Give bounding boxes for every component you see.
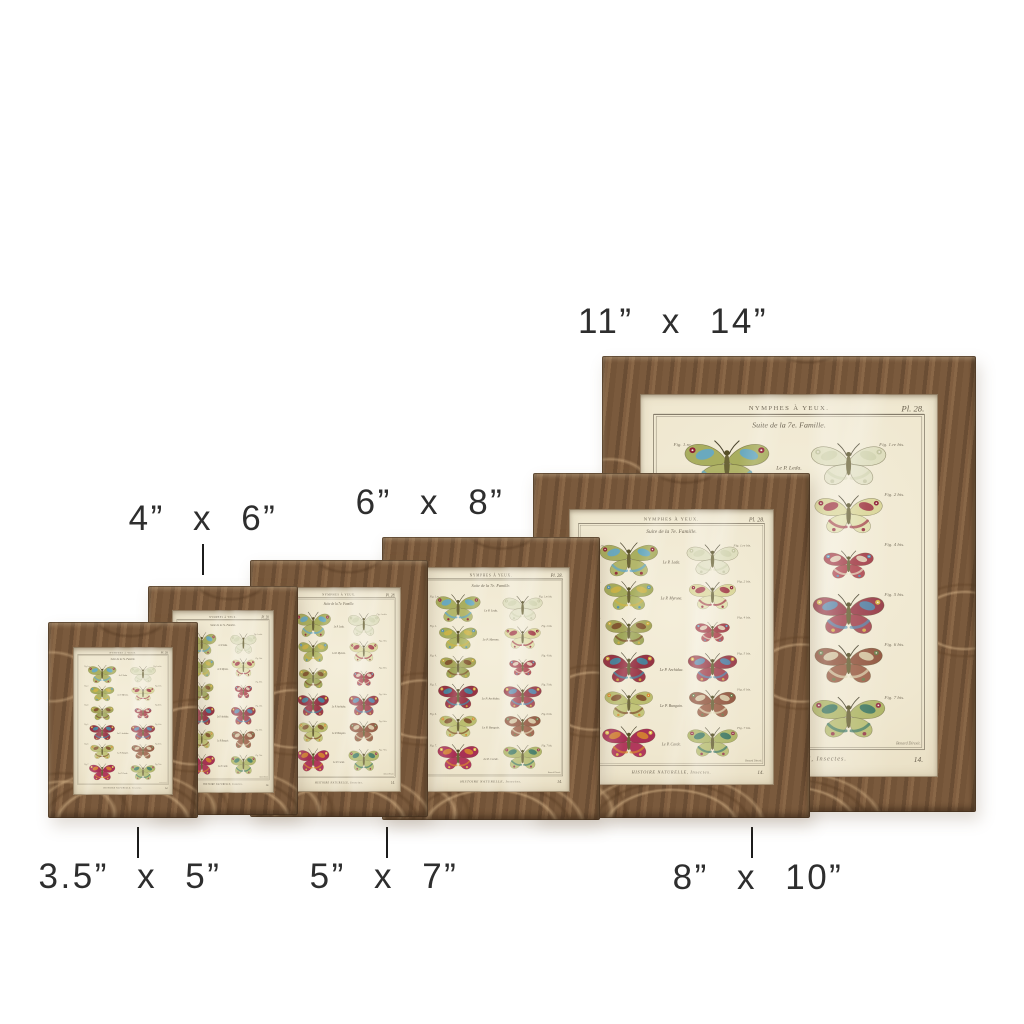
svg-text:Fig. 5.: Fig. 5. xyxy=(429,684,437,687)
size-tick-8x10 xyxy=(751,827,753,858)
svg-text:Fig. 5 bis.: Fig. 5 bis. xyxy=(255,705,263,707)
svg-text:Fig. 2 bis.: Fig. 2 bis. xyxy=(883,493,904,498)
butterfly-plate-svg: NYMPHES À YEUX.Pl. 28.Suite de la 7e. Fa… xyxy=(412,567,570,792)
svg-text:Le P. Archiduc.: Le P. Archiduc. xyxy=(116,732,129,735)
svg-text:Le P. Carde.: Le P. Carde. xyxy=(661,743,681,747)
svg-text:Fig. 5 bis.: Fig. 5 bis. xyxy=(154,724,162,726)
svg-text:HISTOIRE NATURELLE, Insectes.: HISTOIRE NATURELLE, Insectes. xyxy=(202,783,243,786)
svg-text:Le P. Myrone.: Le P. Myrone. xyxy=(217,669,229,671)
svg-text:Benard Direxit.: Benard Direxit. xyxy=(384,772,395,775)
svg-text:HISTOIRE NATURELLE, Insectes.: HISTOIRE NATURELLE, Insectes. xyxy=(631,769,712,775)
svg-text:Benard Direxit.: Benard Direxit. xyxy=(745,760,762,763)
svg-text:Pl. 28.: Pl. 28. xyxy=(385,592,395,597)
size-label-5x7: 5” x 7” xyxy=(244,858,524,896)
svg-text:Pl. 28.: Pl. 28. xyxy=(261,615,270,619)
svg-text:Suite de la 7e. Famille.: Suite de la 7e. Famille. xyxy=(210,623,235,627)
svg-text:Fig. 6 bis.: Fig. 6 bis. xyxy=(541,713,553,716)
svg-text:Fig. 4 bis.: Fig. 4 bis. xyxy=(883,543,904,548)
svg-text:Suite de la 7e. Famille.: Suite de la 7e. Famille. xyxy=(111,658,136,661)
svg-text:Le P. Archiduc.: Le P. Archiduc. xyxy=(216,715,229,718)
svg-text:Fig. 4 bis.: Fig. 4 bis. xyxy=(378,666,388,669)
svg-text:Le P. Bungain.: Le P. Bungain. xyxy=(659,704,683,708)
svg-text:Fig. 6.: Fig. 6. xyxy=(429,713,437,716)
svg-text:Le P. Carde.: Le P. Carde. xyxy=(217,766,228,768)
svg-text:Fig. 5 bis.: Fig. 5 bis. xyxy=(378,694,388,696)
svg-text:HISTOIRE NATURELLE, Insectes.: HISTOIRE NATURELLE, Insectes. xyxy=(103,787,143,790)
svg-text:Fig. 7 bis.: Fig. 7 bis. xyxy=(736,726,751,730)
svg-text:Fig. 7 bis.: Fig. 7 bis. xyxy=(541,744,553,747)
svg-text:14.: 14. xyxy=(266,782,269,786)
svg-text:Fig. 4.: Fig. 4. xyxy=(83,704,89,707)
size-tick-3.5x5 xyxy=(137,827,139,858)
svg-text:Pl. 28.: Pl. 28. xyxy=(900,405,924,414)
butterfly-print-6x8: NYMPHES À YEUX.Pl. 28.Suite de la 7e. Fa… xyxy=(412,567,570,792)
svg-text:Fig. 4 bis.: Fig. 4 bis. xyxy=(255,680,263,683)
svg-text:Fig. 2 bis.: Fig. 2 bis. xyxy=(154,685,162,687)
svg-text:Le P. Bungain.: Le P. Bungain. xyxy=(116,752,129,754)
svg-text:14.: 14. xyxy=(914,756,924,764)
svg-text:Fig. 4.: Fig. 4. xyxy=(429,654,437,657)
svg-text:NYMPHES À YEUX.: NYMPHES À YEUX. xyxy=(470,572,513,577)
svg-text:14.: 14. xyxy=(165,787,168,790)
svg-text:NYMPHES À YEUX.: NYMPHES À YEUX. xyxy=(322,591,356,596)
svg-text:Le P. Bungain.: Le P. Bungain. xyxy=(331,732,346,735)
svg-text:Le P. Archiduc.: Le P. Archiduc. xyxy=(331,705,347,708)
svg-text:Fig. 2 bis.: Fig. 2 bis. xyxy=(541,625,553,628)
svg-text:Benard Direxit.: Benard Direxit. xyxy=(260,775,269,778)
svg-text:Fig. 5 bis.: Fig. 5 bis. xyxy=(736,652,751,656)
svg-text:Fig. 2 bis.: Fig. 2 bis. xyxy=(378,641,388,643)
svg-text:Fig. 7 bis.: Fig. 7 bis. xyxy=(154,764,162,766)
svg-text:Le P. Carde.: Le P. Carde. xyxy=(483,757,499,761)
svg-text:14.: 14. xyxy=(757,770,763,776)
svg-text:Fig. 1.re bis.: Fig. 1.re bis. xyxy=(376,614,388,616)
svg-text:Fig. 5 bis.: Fig. 5 bis. xyxy=(541,684,553,687)
svg-text:Fig. 2 bis.: Fig. 2 bis. xyxy=(255,658,263,660)
svg-text:Fig. 7 bis.: Fig. 7 bis. xyxy=(883,696,904,701)
svg-text:Fig. 6 bis.: Fig. 6 bis. xyxy=(154,743,162,745)
svg-text:Fig. 1.re bis.: Fig. 1.re bis. xyxy=(878,443,904,448)
butterfly-plate-svg: NYMPHES À YEUX.Pl. 28.Suite de la 7e. Fa… xyxy=(73,647,173,795)
svg-text:Fig. 6 bis.: Fig. 6 bis. xyxy=(255,729,263,731)
svg-text:Le P. Myrone.: Le P. Myrone. xyxy=(117,694,129,696)
svg-text:Pl. 28.: Pl. 28. xyxy=(748,518,765,524)
svg-text:NYMPHES À YEUX.: NYMPHES À YEUX. xyxy=(109,651,136,654)
svg-text:Fig. 1.re bis.: Fig. 1.re bis. xyxy=(733,544,752,548)
svg-text:14.: 14. xyxy=(391,781,395,785)
size-label-4x6: 4” x 6” xyxy=(63,500,343,538)
svg-text:Fig. 7 bis.: Fig. 7 bis. xyxy=(378,749,388,751)
size-tick-4x6 xyxy=(202,544,204,575)
svg-text:Fig. 7.: Fig. 7. xyxy=(429,744,437,747)
svg-text:Benard Direxit.: Benard Direxit. xyxy=(159,780,168,783)
svg-text:Fig. 7 bis.: Fig. 7 bis. xyxy=(255,755,263,757)
svg-text:Pl. 28.: Pl. 28. xyxy=(160,651,169,655)
svg-text:Suite de la 7e. Famille.: Suite de la 7e. Famille. xyxy=(752,421,826,430)
svg-text:Fig. 2.: Fig. 2. xyxy=(429,625,437,628)
svg-text:Le P. Leda.: Le P. Leda. xyxy=(775,466,802,472)
svg-text:NYMPHES À YEUX.: NYMPHES À YEUX. xyxy=(644,517,699,522)
svg-text:Le P. Leda.: Le P. Leda. xyxy=(662,560,681,564)
svg-text:Fig. 6 bis.: Fig. 6 bis. xyxy=(736,688,751,692)
svg-text:Le P. Leda.: Le P. Leda. xyxy=(483,608,498,612)
svg-text:Le P. Archiduc.: Le P. Archiduc. xyxy=(659,668,684,672)
svg-text:Le P. Archiduc.: Le P. Archiduc. xyxy=(481,696,501,700)
svg-text:Le P. Bungain.: Le P. Bungain. xyxy=(216,740,229,742)
svg-text:Fig. 6.: Fig. 6. xyxy=(83,743,89,745)
svg-text:Suite de la 7e. Famille.: Suite de la 7e. Famille. xyxy=(646,529,697,535)
svg-text:Fig. 4 bis.: Fig. 4 bis. xyxy=(154,704,162,707)
svg-text:Benard Direxit.: Benard Direxit. xyxy=(896,742,921,746)
svg-text:Fig. 5.: Fig. 5. xyxy=(83,724,89,726)
svg-text:14.: 14. xyxy=(557,779,562,784)
svg-text:Fig. 6 bis.: Fig. 6 bis. xyxy=(883,643,904,648)
svg-text:HISTOIRE NATURELLE, Insectes.: HISTOIRE NATURELLE, Insectes. xyxy=(459,779,521,784)
svg-text:Fig. 7.: Fig. 7. xyxy=(83,764,89,766)
svg-text:Suite de la 7e. Famille.: Suite de la 7e. Famille. xyxy=(324,602,355,606)
size-label-8x10: 8” x 10” xyxy=(618,859,898,897)
size-tick-5x7 xyxy=(386,827,388,858)
frame-3.5x5: NYMPHES À YEUX.Pl. 28.Suite de la 7e. Fa… xyxy=(48,622,198,818)
svg-text:Le P. Myrone.: Le P. Myrone. xyxy=(332,652,346,655)
svg-text:Fig. 1.re bis.: Fig. 1.re bis. xyxy=(538,596,553,599)
svg-text:Le P. Bungain.: Le P. Bungain. xyxy=(481,726,500,730)
svg-text:Le P. Leda.: Le P. Leda. xyxy=(118,675,128,677)
svg-text:Le P. Myrone.: Le P. Myrone. xyxy=(482,638,500,642)
svg-text:Fig. 2.: Fig. 2. xyxy=(83,685,89,687)
svg-text:Benard Direxit.: Benard Direxit. xyxy=(548,771,561,774)
svg-text:Suite de la 7e. Famille.: Suite de la 7e. Famille. xyxy=(472,583,511,588)
svg-text:NYMPHES À YEUX.: NYMPHES À YEUX. xyxy=(209,616,237,619)
svg-text:Fig. 4 bis.: Fig. 4 bis. xyxy=(736,616,751,620)
svg-text:Le P. Leda.: Le P. Leda. xyxy=(333,625,345,628)
size-label-11x14: 11” x 14” xyxy=(513,303,833,341)
svg-text:Fig. 2 bis.: Fig. 2 bis. xyxy=(736,580,751,584)
svg-text:Pl. 28.: Pl. 28. xyxy=(550,574,563,579)
svg-text:Fig. 6 bis.: Fig. 6 bis. xyxy=(378,721,388,723)
size-label-3.5x5: 3.5” x 5” xyxy=(0,858,260,896)
svg-text:Le P. Carde.: Le P. Carde. xyxy=(117,773,128,775)
svg-text:Le P. Myrone.: Le P. Myrone. xyxy=(660,596,683,600)
svg-text:HISTOIRE NATURELLE, Insectes.: HISTOIRE NATURELLE, Insectes. xyxy=(314,780,363,784)
svg-text:Fig. 4 bis.: Fig. 4 bis. xyxy=(541,654,553,657)
butterfly-print-3.5x5: NYMPHES À YEUX.Pl. 28.Suite de la 7e. Fa… xyxy=(73,647,173,795)
product-size-comparison-image: NYMPHES À YEUX.Pl. 28.Suite de la 7e. Fa… xyxy=(0,0,1024,1024)
svg-text:Le P. Carde.: Le P. Carde. xyxy=(332,761,345,764)
svg-text:NYMPHES À YEUX.: NYMPHES À YEUX. xyxy=(749,404,830,412)
svg-text:Le P. Leda.: Le P. Leda. xyxy=(218,645,228,647)
svg-text:Fig. 5 bis.: Fig. 5 bis. xyxy=(883,593,904,598)
